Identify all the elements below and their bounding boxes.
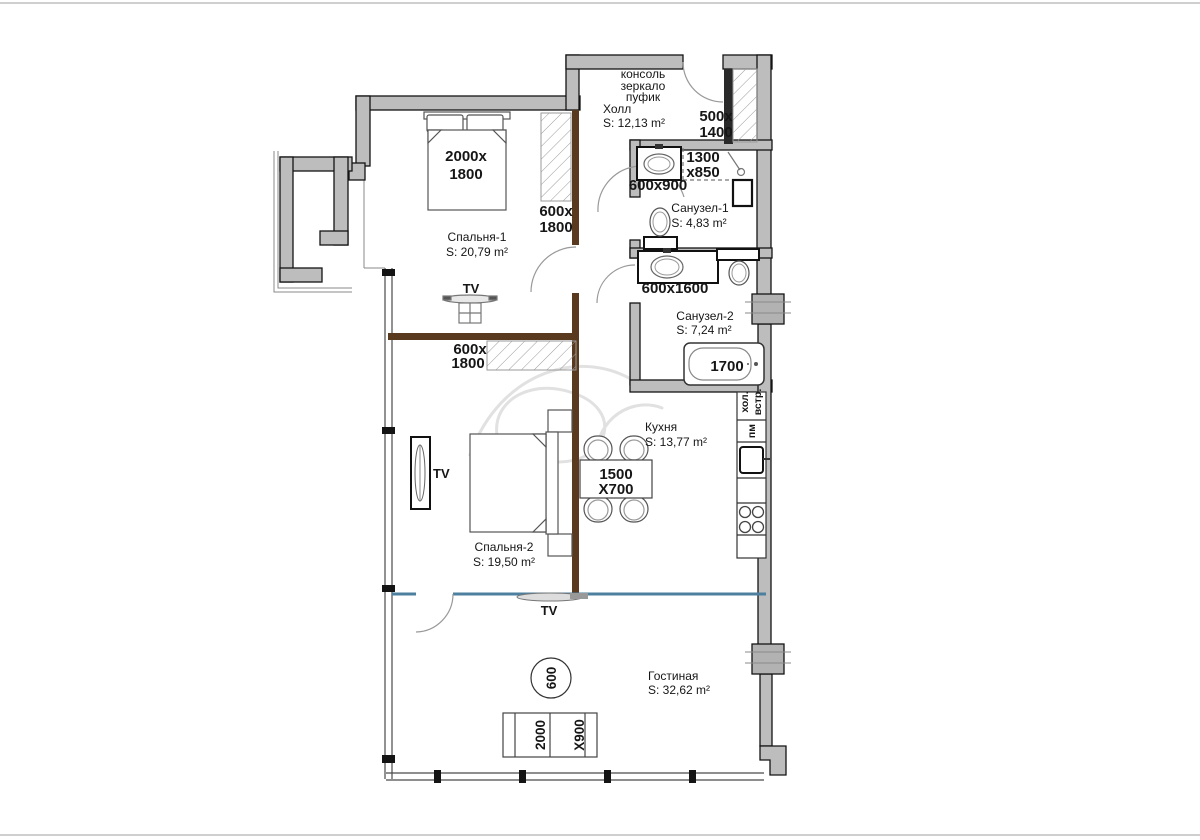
bedroom2-name: Спальня-2 [475,540,534,554]
shower-head [738,169,745,176]
floor-plan: консоль зеркало пуфик Холл S: 12,13 m² 5… [0,0,1200,840]
bedroom2-area: S: 19,50 m² [473,555,535,569]
hall-closet-dim-w: 500x [699,108,733,125]
dishwasher-label: пм [746,424,758,438]
shower-dim-h: x850 [686,164,719,181]
hall-closet [733,69,757,142]
living-name: Гостиная [648,669,698,683]
toilet2-shelf [717,249,759,260]
sink1-dim: 600x900 [629,177,687,194]
tv-unit-bedroom1 [443,295,497,323]
bench-dim-h: X900 [572,719,587,751]
kitchen-area: S: 13,77 m² [645,435,707,449]
wardrobe1-dim-h: 1800 [539,219,572,236]
tv-unit-bedroom2 [411,437,430,509]
toilet1-tank [644,237,677,249]
kitchen-counter [737,392,770,558]
wardrobe2-dim-h: 1800 [451,355,484,372]
bedroom1-wardrobe [541,113,571,201]
bottom-edge-line [0,834,1200,836]
kitchen-sink [740,447,763,473]
bathroom1-name: Санузел-1 [671,201,729,215]
bathtub-dim: 1700 [710,358,743,375]
hall-name: Холл [603,102,631,116]
kitchen-name: Кухня [645,420,677,434]
bedroom1-name: Спальня-1 [448,230,507,244]
washer-box [733,180,752,206]
hall-area: S: 12,13 m² [603,116,665,130]
tv-label-living: TV [541,603,558,618]
hall-closet-dim-h: 1400 [699,124,732,141]
fridge-label-line1: хол. [739,391,751,412]
floor-plan-drawing: консоль зеркало пуфик Холл S: 12,13 m² 5… [0,0,1200,840]
tv-living [517,593,588,601]
tv-label-bedroom1: TV [463,281,480,296]
living-area: S: 32,62 m² [648,683,710,697]
bed-2 [470,410,572,556]
fridge-label-line2: встр. [752,389,764,416]
bed1-dim-w: 2000x [445,148,487,165]
bench-dim-w: 2000 [533,720,548,750]
wardrobe1-dim-w: 600x [539,203,573,220]
bathroom2-area: S: 7,24 m² [676,323,731,337]
bedroom1-area: S: 20,79 m² [446,245,508,259]
bedroom2-wardrobe [487,341,576,370]
bathroom1-area: S: 4,83 m² [671,216,726,230]
table-dim-h: X700 [598,481,633,498]
sink2-dim: 600x1600 [642,280,709,297]
bed1-dim-h: 1800 [449,166,482,183]
top-edge-line [0,2,1200,4]
column-dim: 600 [544,667,559,690]
bathroom2-name: Санузел-2 [676,309,734,323]
tv-label-bedroom2: TV [433,466,450,481]
